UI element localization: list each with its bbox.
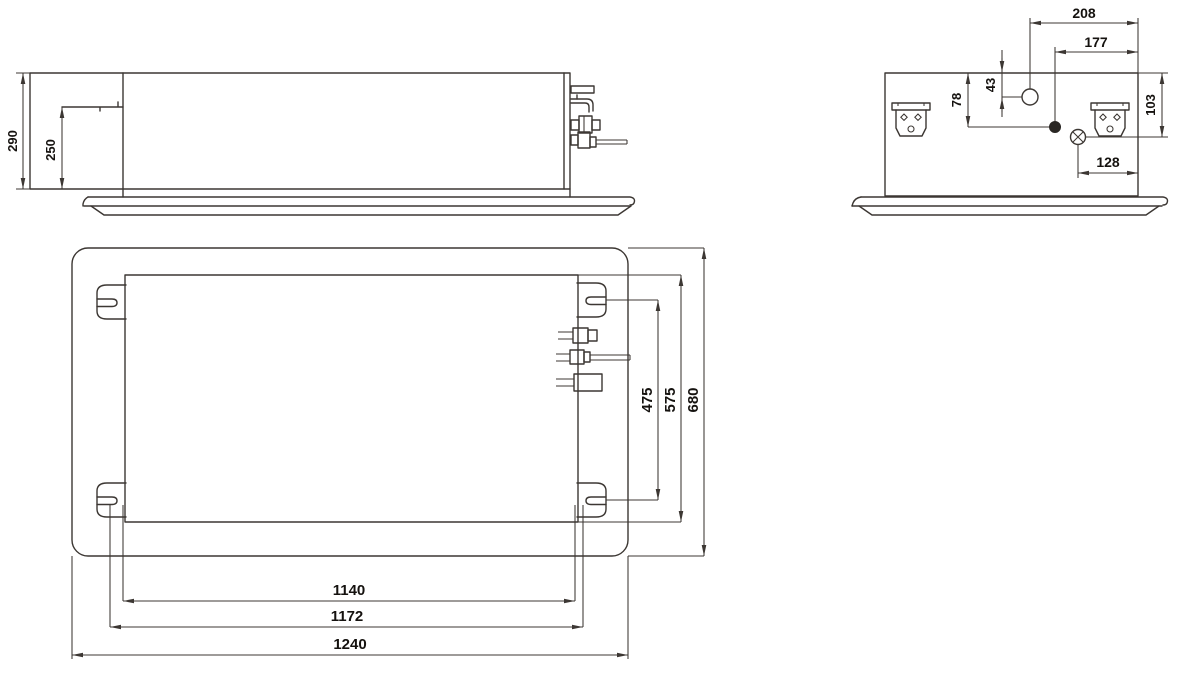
side-dim-43: 43: [983, 50, 1002, 117]
flare-nut-lower-icon: [556, 350, 630, 364]
plan-dim-475: 475: [639, 300, 658, 500]
dim-label-177: 177: [1084, 34, 1108, 50]
front-unit-body: [30, 73, 570, 197]
hanger-bracket-right-icon: [1091, 103, 1129, 136]
plan-bracket-top-left-icon: [97, 285, 126, 319]
front-dim-290: 290: [5, 73, 30, 189]
plan-extension-lines: [72, 248, 704, 659]
hole-filled-icon: [1050, 122, 1061, 133]
bolt-symbol-icon: [1071, 130, 1086, 145]
plan-dim-1140: 1140: [123, 582, 575, 601]
drain-connector-icon: [556, 374, 602, 391]
plan-bracket-top-right-icon: [577, 283, 606, 317]
technical-drawing-page: 290 250: [0, 0, 1200, 673]
dim-label-1172: 1172: [331, 608, 364, 625]
dim-label-1240: 1240: [333, 636, 366, 653]
plan-ceiling-panel: [72, 248, 628, 556]
side-dim-208: 208: [1030, 5, 1138, 23]
side-dim-103: 103: [1143, 73, 1162, 137]
flare-nut-lower-icon: [571, 132, 627, 148]
hanger-lug-icon: [571, 86, 594, 93]
plan-bracket-bottom-right-icon: [577, 483, 606, 517]
dimension-drawing-svg: 290 250: [0, 0, 1200, 673]
hanger-bracket-left-icon: [892, 103, 930, 136]
plan-dim-1240: 1240: [72, 636, 628, 655]
hole-open-icon: [1022, 89, 1038, 105]
dim-label-103: 103: [1143, 94, 1158, 116]
dim-label-43: 43: [983, 78, 998, 92]
side-ceiling-panel: [852, 197, 1168, 215]
dim-label-290: 290: [5, 130, 20, 152]
dim-label-250: 250: [43, 139, 58, 161]
front-dim-250: 250: [43, 107, 62, 189]
side-dim-128: 128: [1078, 154, 1138, 173]
plan-pipe-fittings: [556, 328, 630, 391]
plan-dim-575: 575: [662, 275, 681, 522]
dim-label-1140: 1140: [333, 582, 366, 599]
plan-unit-body: [125, 275, 578, 522]
plan-bracket-bottom-left-icon: [97, 483, 126, 517]
dim-label-680: 680: [685, 387, 702, 412]
side-dim-78: 78: [949, 73, 968, 127]
dim-label-128: 128: [1096, 154, 1120, 170]
side-view: 208 177 43 78 103 128: [852, 5, 1168, 215]
front-pipe-fittings: [571, 86, 627, 148]
flare-nut-upper-icon: [571, 116, 600, 133]
dim-label-475: 475: [639, 387, 656, 412]
plan-dim-1172: 1172: [110, 608, 583, 627]
dim-label-575: 575: [662, 387, 679, 412]
front-ceiling-panel: [83, 197, 635, 215]
dim-label-208: 208: [1072, 5, 1096, 21]
front-view: 290 250: [5, 73, 635, 215]
plan-dim-680: 680: [685, 248, 704, 556]
plan-view: 475 575 680 1140 1172 1240: [72, 248, 704, 659]
side-dim-177: 177: [1055, 34, 1138, 52]
dim-label-78: 78: [949, 93, 964, 107]
